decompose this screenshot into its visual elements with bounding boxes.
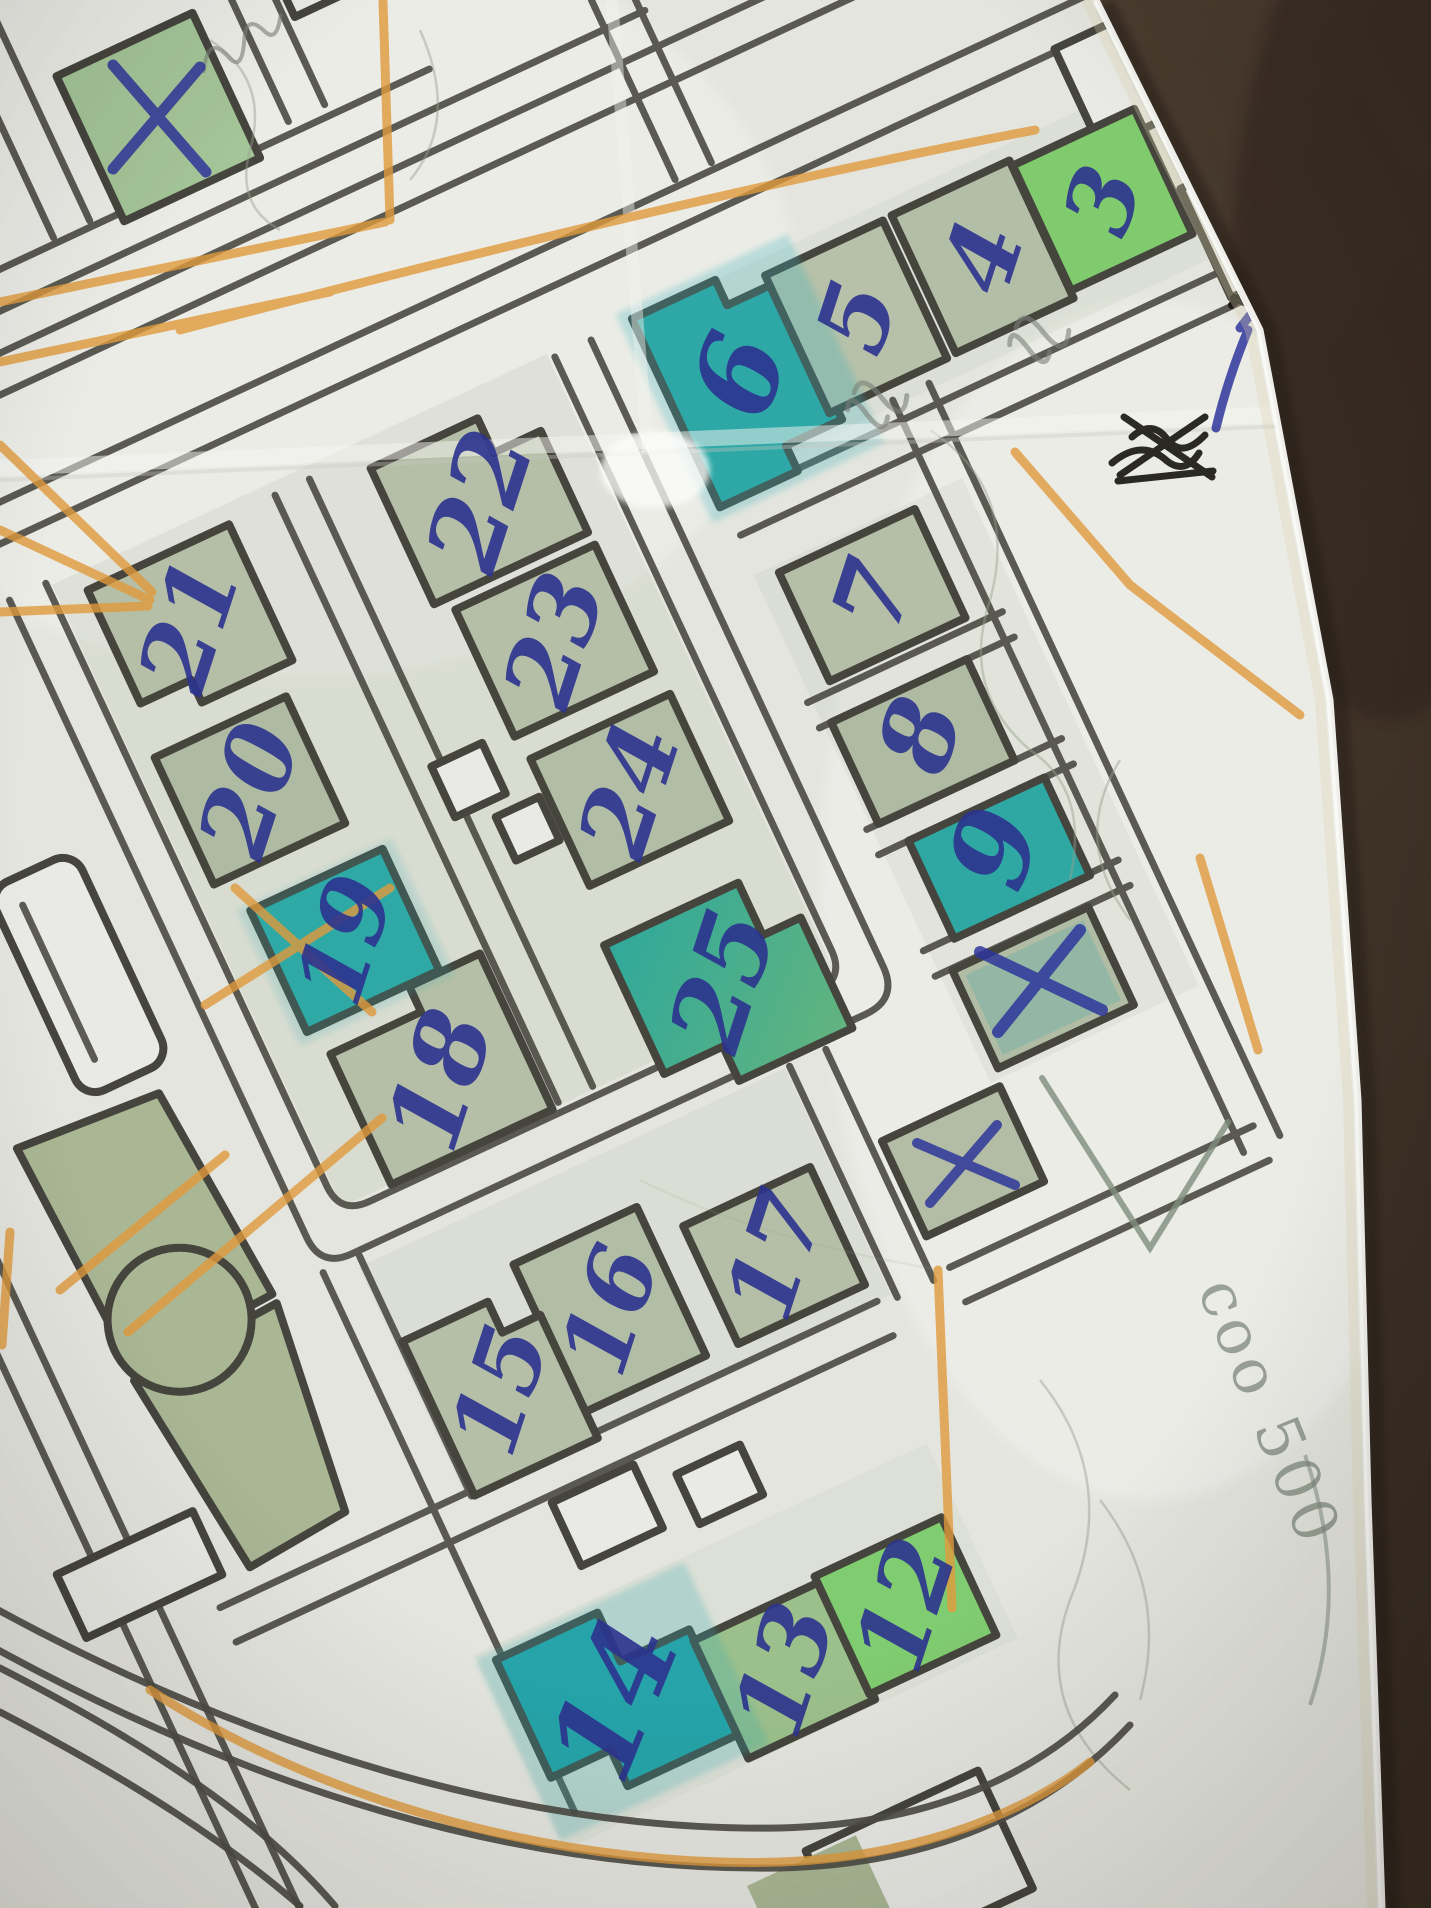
photo-of-paper-map: соо 500 xyxy=(0,0,1431,1908)
photo-vignette xyxy=(0,0,1431,1908)
map-photo-canvas: соо 500 xyxy=(0,0,1431,1908)
